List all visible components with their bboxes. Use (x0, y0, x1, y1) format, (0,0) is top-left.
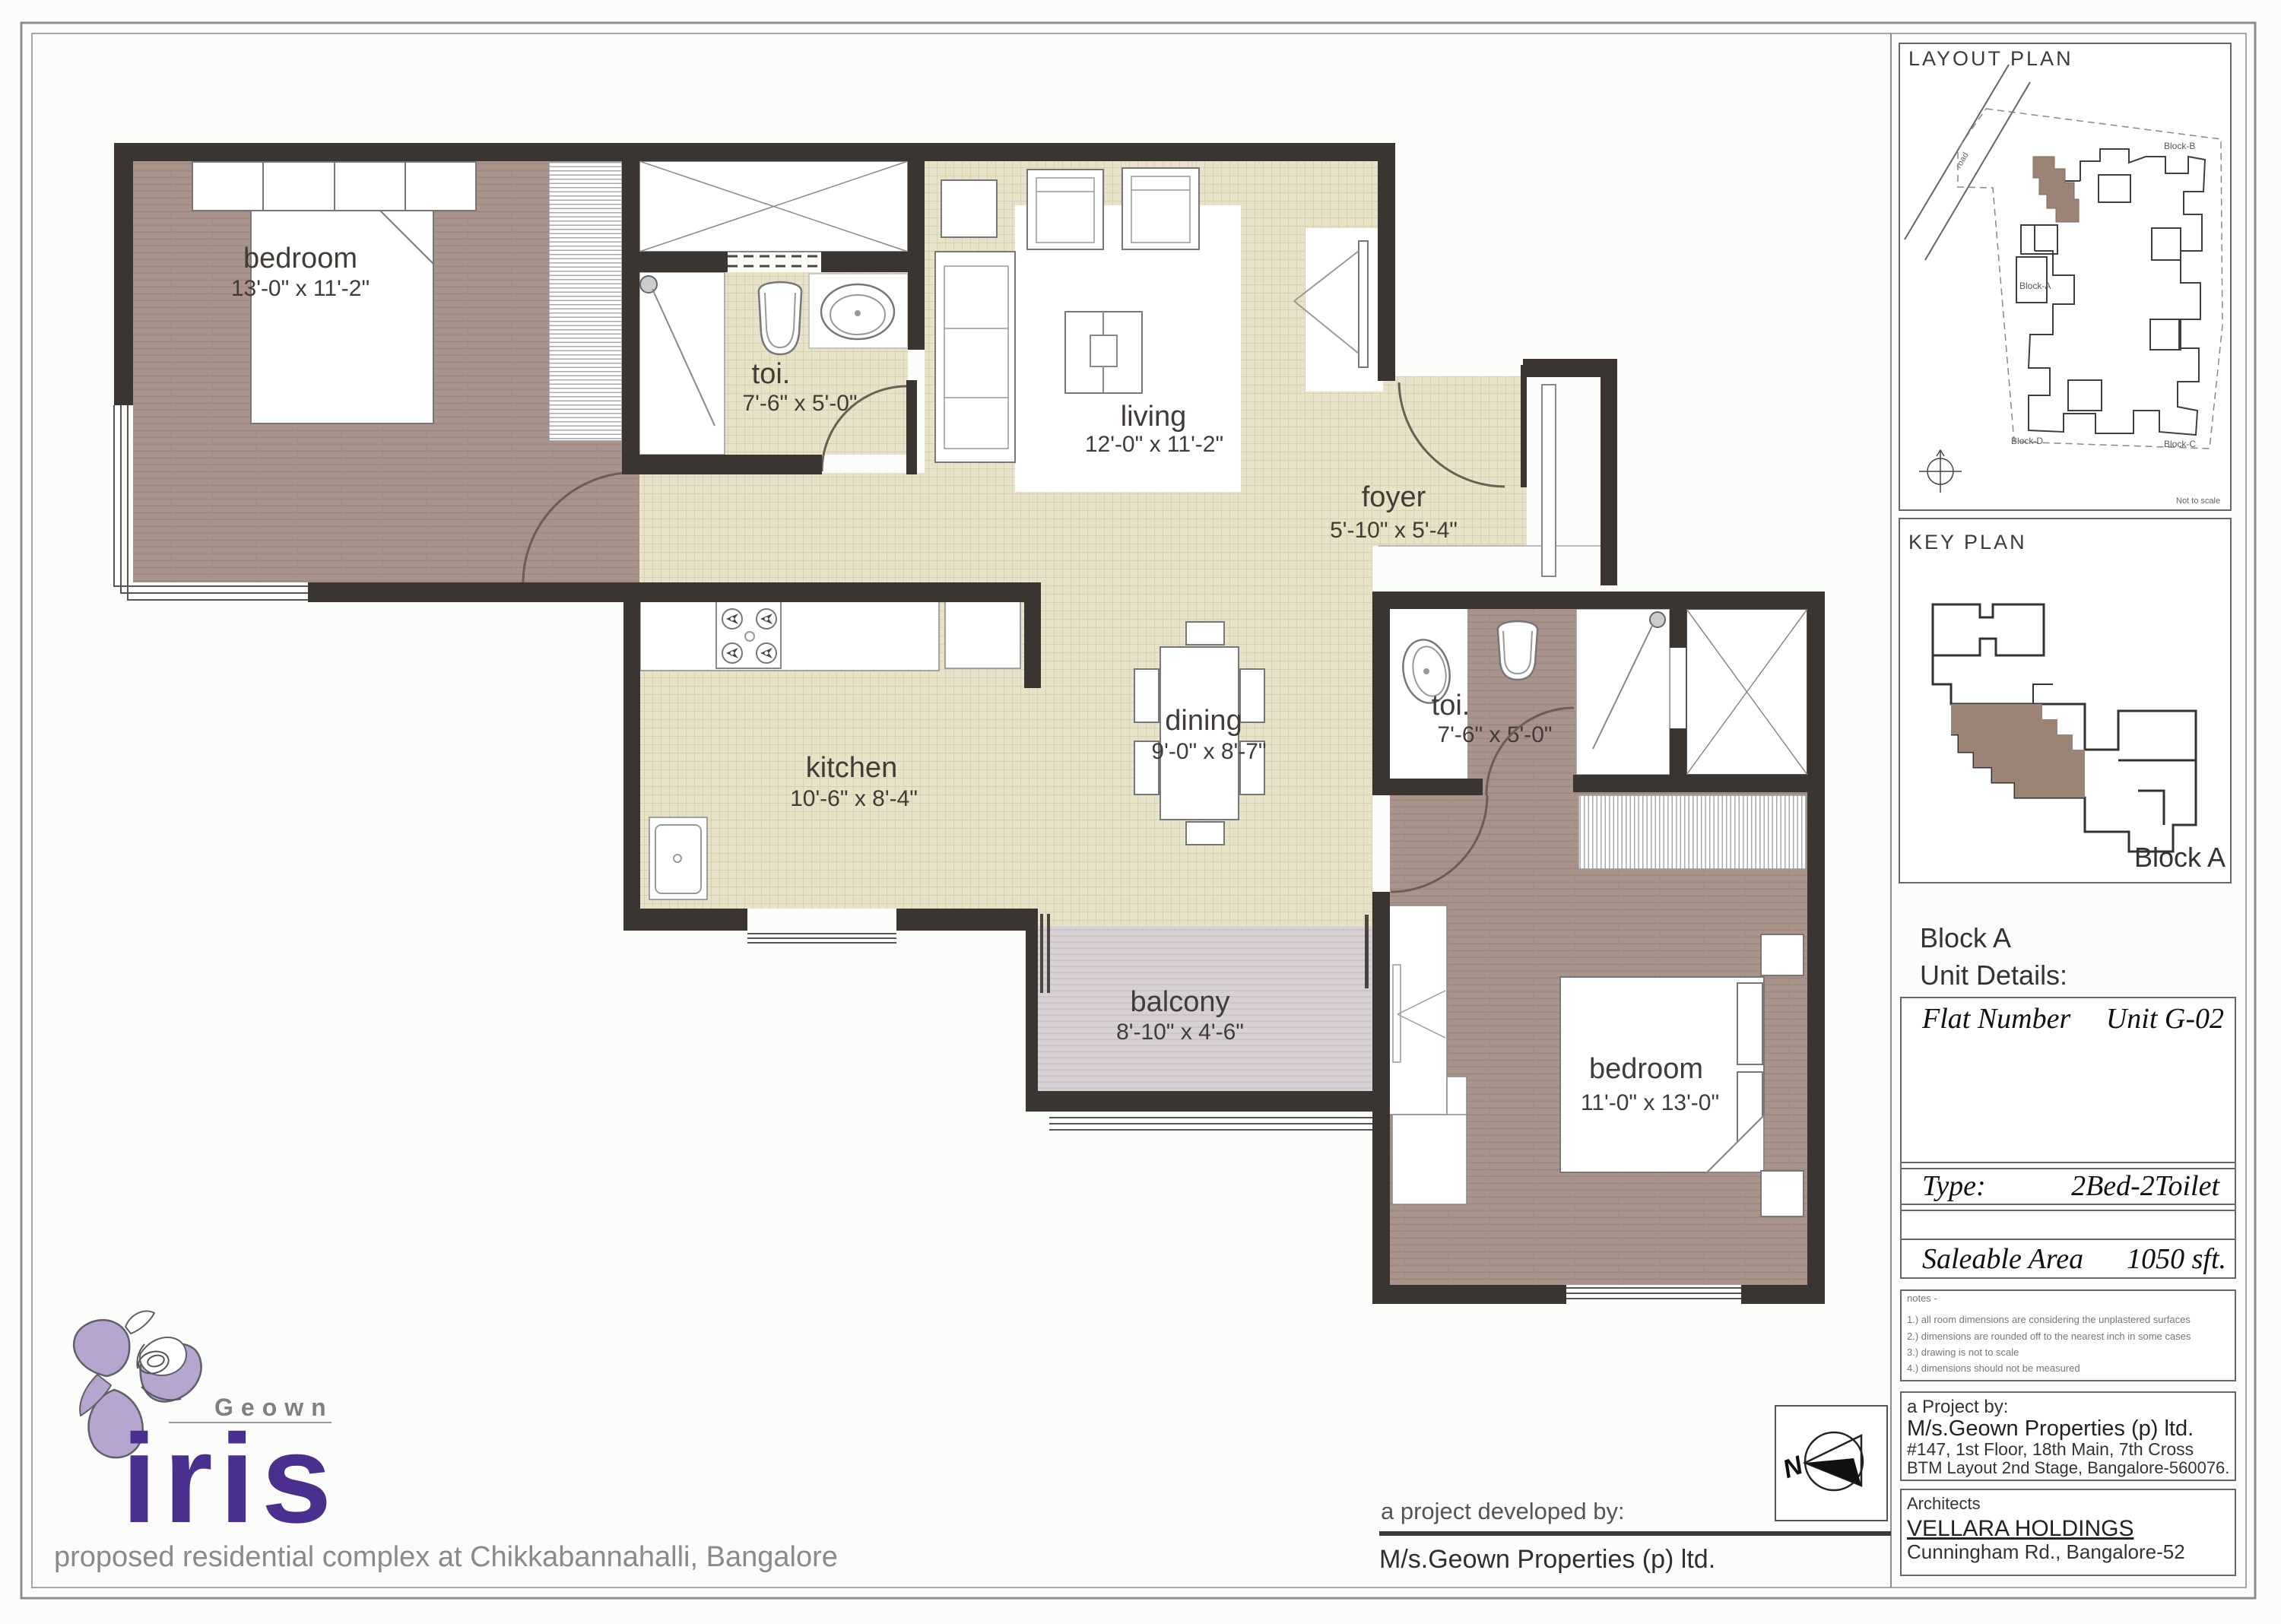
svg-text:a Project by:: a Project by: (1907, 1397, 2008, 1417)
svg-text:#147, 1st Floor, 18th Main, 7t: #147, 1st Floor, 18th Main, 7th Cross (1907, 1439, 2194, 1459)
svg-text:Block A: Block A (1920, 922, 2011, 953)
svg-text:11'-0" x 13'-0": 11'-0" x 13'-0" (1581, 1090, 1719, 1115)
svg-text:Block-A: Block-A (2019, 281, 2051, 291)
svg-text:kitchen: kitchen (806, 752, 897, 784)
svg-text:bedroom: bedroom (1589, 1053, 1703, 1085)
svg-text:Cunningham Rd., Bangalore-52: Cunningham Rd., Bangalore-52 (1907, 1540, 2185, 1563)
svg-text:10'-6" x 8'-4": 10'-6" x 8'-4" (790, 786, 918, 811)
svg-text:2.) dimensions are rounded off: 2.) dimensions are rounded off to the ne… (1907, 1331, 2191, 1342)
svg-text:Type:: Type: (1922, 1170, 1986, 1202)
svg-text:12'-0" x 11'-2": 12'-0" x 11'-2" (1085, 432, 1223, 457)
svg-text:BTM Layout 2nd Stage, Bangalor: BTM Layout 2nd Stage, Bangalore-560076. (1907, 1458, 2229, 1477)
svg-text:foyer: foyer (1362, 481, 1426, 513)
svg-text:2Bed-2Toilet: 2Bed-2Toilet (2071, 1170, 2220, 1202)
svg-text:dining: dining (1165, 705, 1242, 737)
svg-text:iris: iris (122, 1409, 338, 1549)
svg-text:KEY PLAN: KEY PLAN (1908, 531, 2027, 553)
svg-text:7'-6" x 5'-0": 7'-6" x 5'-0" (742, 391, 857, 416)
svg-text:5'-10" x 5'-4": 5'-10" x 5'-4" (1330, 518, 1458, 543)
svg-text:VELLARA HOLDINGS: VELLARA HOLDINGS (1907, 1516, 2133, 1541)
svg-text:1050 sft.: 1050 sft. (2127, 1243, 2226, 1275)
svg-text:9'-0" x 8'-7": 9'-0" x 8'-7" (1151, 739, 1266, 764)
svg-text:bedroom: bedroom (243, 243, 357, 274)
svg-text:M/s.Geown Properties (p) ltd.: M/s.Geown Properties (p) ltd. (1379, 1545, 1715, 1574)
svg-text:toi.: toi. (752, 358, 791, 390)
svg-text:3.) drawing is not to scale: 3.) drawing is not to scale (1907, 1346, 2019, 1358)
svg-text:Saleable Area: Saleable Area (1922, 1243, 2083, 1275)
svg-text:toi.: toi. (1432, 690, 1470, 722)
svg-text:Architects: Architects (1907, 1494, 1981, 1513)
svg-text:notes -: notes - (1907, 1293, 1937, 1304)
svg-text:living: living (1121, 401, 1187, 433)
svg-text:Block-C: Block-C (2164, 439, 2196, 449)
svg-text:1.) all room dimensions are co: 1.) all room dimensions are considering … (1907, 1314, 2191, 1325)
svg-text:M/s.Geown Properties (p) ltd.: M/s.Geown Properties (p) ltd. (1907, 1416, 2194, 1441)
svg-text:13'-0" x 11'-2": 13'-0" x 11'-2" (231, 276, 370, 301)
svg-text:Block A: Block A (2134, 842, 2225, 873)
svg-text:a project developed by:: a project developed by: (1381, 1498, 1625, 1524)
svg-text:8'-10" x 4'-6": 8'-10" x 4'-6" (1116, 1020, 1244, 1045)
svg-text:Block-D: Block-D (2011, 436, 2043, 446)
svg-text:balcony: balcony (1131, 986, 1230, 1018)
svg-text:proposed residential complex a: proposed residential complex at Chikkaba… (54, 1541, 838, 1573)
svg-text:Flat Number: Flat Number (1921, 1003, 2070, 1035)
svg-text:Block-B: Block-B (2164, 141, 2195, 151)
svg-text:Unit G-02: Unit G-02 (2106, 1003, 2224, 1035)
svg-text:7'-6" x 5'-0": 7'-6" x 5'-0" (1437, 722, 1552, 747)
svg-text:4.) dimensions should not be m: 4.) dimensions should not be measured (1907, 1362, 2080, 1374)
svg-text:LAYOUT PLAN: LAYOUT PLAN (1908, 47, 2073, 70)
svg-text:Not to scale: Not to scale (2176, 496, 2220, 506)
svg-text:Unit Details:: Unit Details: (1920, 959, 2067, 991)
